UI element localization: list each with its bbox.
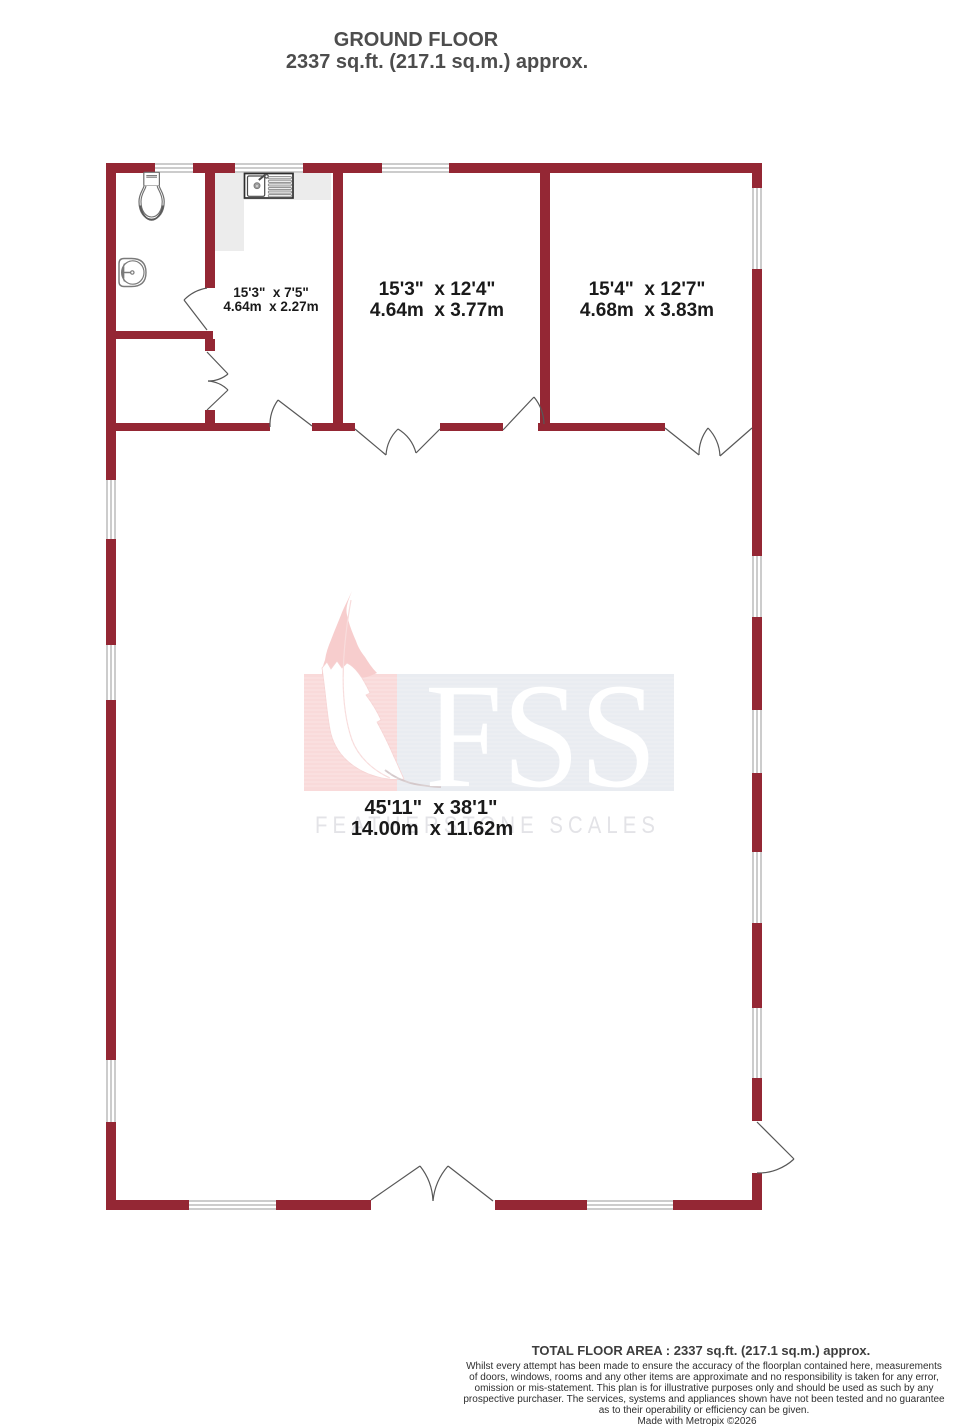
svg-text:45'11" x 38'1": 45'11" x 38'1" xyxy=(364,797,497,819)
svg-text:4.68m x 3.83m: 4.68m x 3.83m xyxy=(580,300,714,321)
svg-text:15'4" x 12'7": 15'4" x 12'7" xyxy=(589,279,706,300)
svg-text:as to their operability or eff: as to their operability or efficiency ca… xyxy=(599,1405,810,1416)
svg-text:2337 sq.ft. (217.1 sq.m.) appr: 2337 sq.ft. (217.1 sq.m.) approx. xyxy=(286,51,588,73)
svg-text:Made with Metropix ©2026: Made with Metropix ©2026 xyxy=(637,1416,757,1427)
svg-text:omission or mis-statement. Thi: omission or mis-statement. This plan is … xyxy=(475,1383,934,1394)
svg-text:GROUND FLOOR: GROUND FLOOR xyxy=(334,29,499,51)
svg-text:prospective purchaser. The ser: prospective purchaser. The services, sys… xyxy=(463,1394,945,1405)
svg-text:4.64m x 3.77m: 4.64m x 3.77m xyxy=(370,300,504,321)
svg-text:4.64m x 2.27m: 4.64m x 2.27m xyxy=(223,299,318,314)
svg-text:14.00m x 11.62m: 14.00m x 11.62m xyxy=(351,818,513,840)
svg-text:Whilst every attempt has been: Whilst every attempt has been made to en… xyxy=(466,1361,942,1372)
svg-text:of doors, windows, rooms and a: of doors, windows, rooms and any other i… xyxy=(469,1372,939,1383)
svg-text:15'3" x 7'5": 15'3" x 7'5" xyxy=(233,285,309,300)
svg-text:TOTAL FLOOR AREA : 2337 sq.ft.: TOTAL FLOOR AREA : 2337 sq.ft. (217.1 sq… xyxy=(532,1343,871,1358)
svg-text:15'3" x 12'4": 15'3" x 12'4" xyxy=(379,279,496,300)
